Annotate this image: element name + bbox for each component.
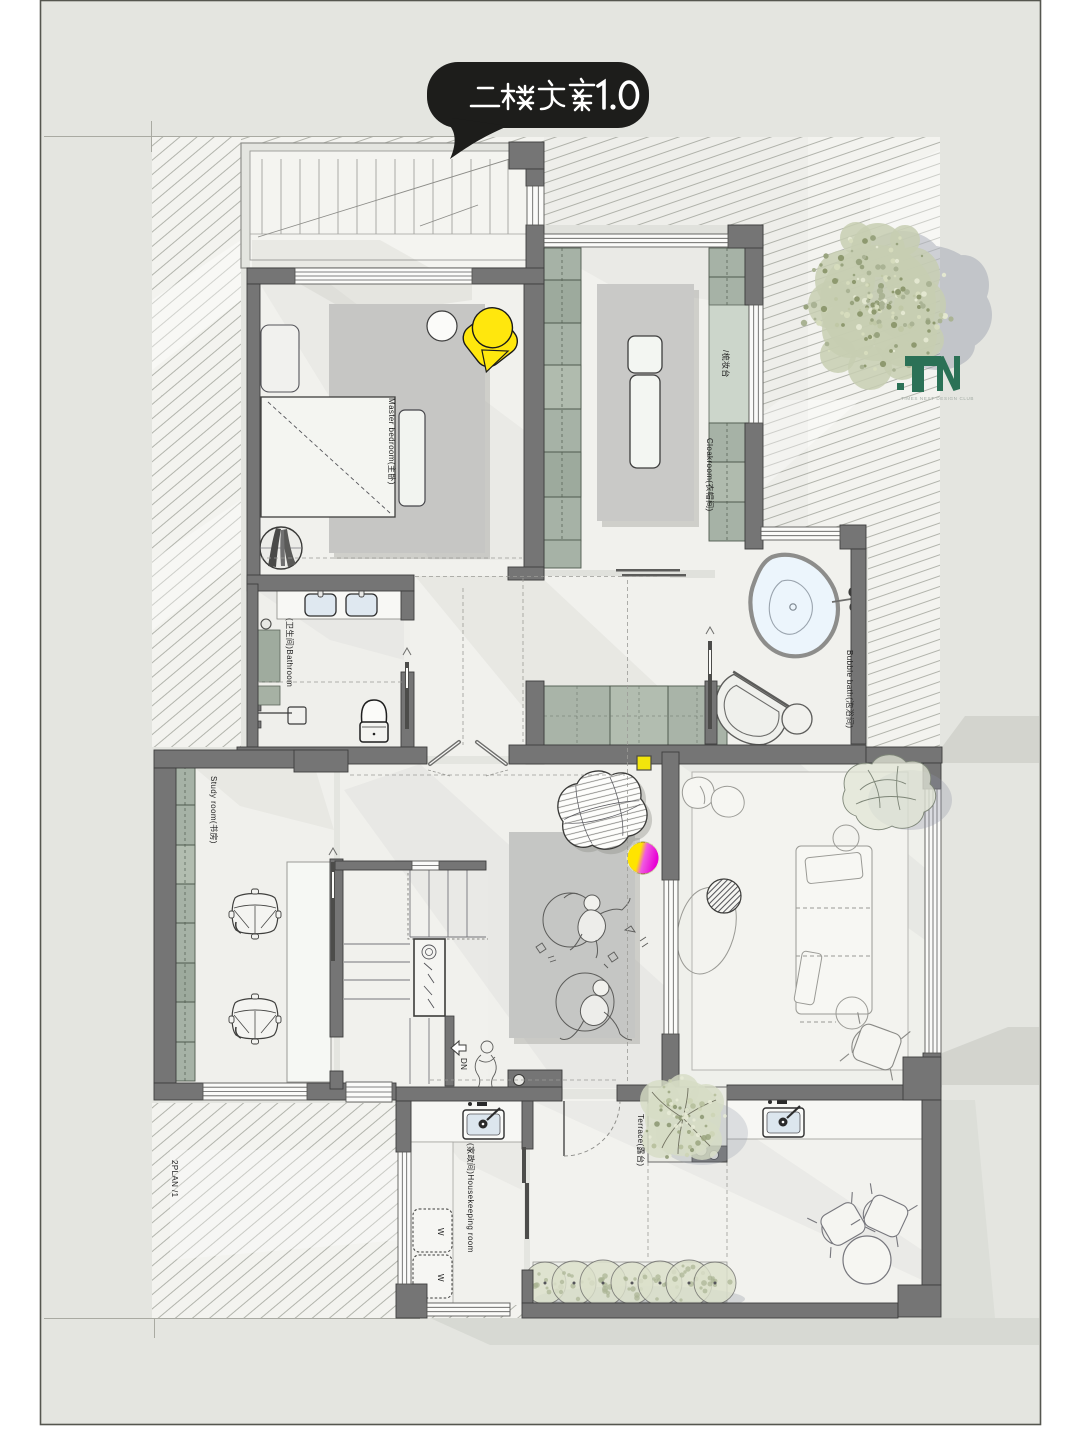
svg-text:Bubble bath(泡浴间): Bubble bath(泡浴间) xyxy=(845,650,855,728)
svg-text:Study room(书房): Study room(书房) xyxy=(209,776,219,844)
svg-text:W: W xyxy=(436,1228,445,1236)
svg-text:TIMES NEST DESIGN CLUB: TIMES NEST DESIGN CLUB xyxy=(901,396,974,401)
svg-text:Master bedroom(主卧): Master bedroom(主卧) xyxy=(387,398,397,485)
svg-text:W: W xyxy=(436,1274,445,1282)
svg-text:Cloakroom(衣帽间): Cloakroom(衣帽间) xyxy=(705,438,715,512)
svg-text:(家政间)Housekeeping room: (家政间)Housekeeping room xyxy=(466,1143,476,1253)
svg-text:DN: DN xyxy=(459,1058,468,1070)
svg-text:(卫生间)Bathroom: (卫生间)Bathroom xyxy=(285,618,295,687)
svg-text:/梳妆台: /梳妆台 xyxy=(721,350,731,378)
svg-text:Terrace(露台): Terrace(露台) xyxy=(636,1114,646,1166)
svg-text:2PLAN /1: 2PLAN /1 xyxy=(170,1160,179,1198)
